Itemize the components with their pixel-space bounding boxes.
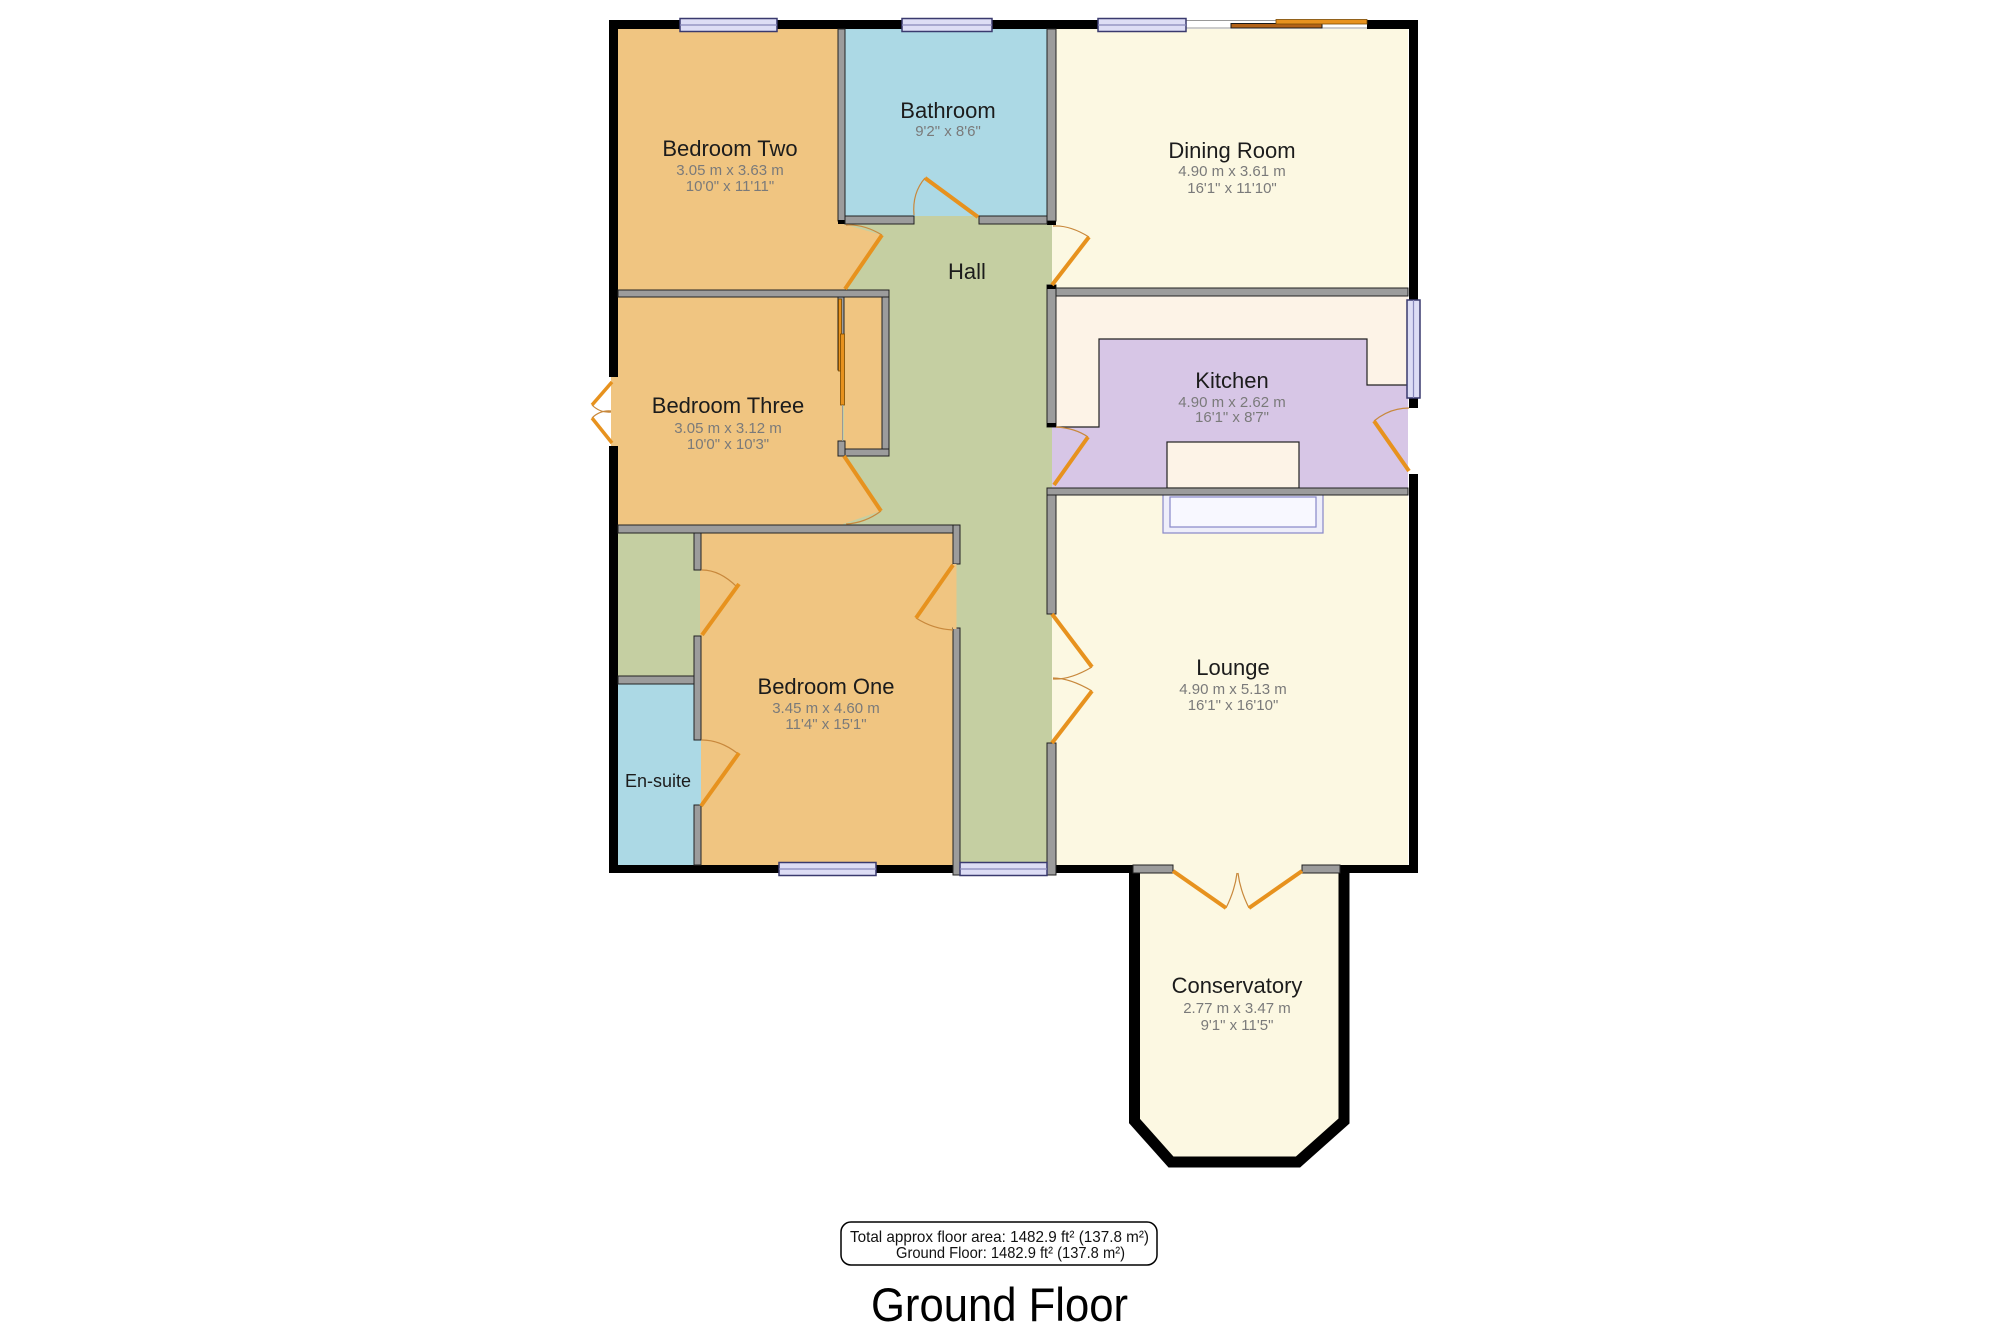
- svg-text:Bedroom One: Bedroom One: [758, 674, 895, 699]
- svg-text:Conservatory: Conservatory: [1172, 973, 1303, 998]
- svg-text:3.45 m x 4.60 m: 3.45 m x 4.60 m: [772, 700, 880, 717]
- svg-text:2.77 m x 3.47 m: 2.77 m x 3.47 m: [1183, 1000, 1291, 1017]
- svg-text:En-suite: En-suite: [625, 771, 691, 791]
- svg-text:Bedroom Two: Bedroom Two: [662, 136, 797, 161]
- svg-text:Ground Floor: 1482.9 ft² (137.: Ground Floor: 1482.9 ft² (137.8 m²): [896, 1245, 1125, 1262]
- svg-text:10'0" x 11'11": 10'0" x 11'11": [686, 178, 774, 195]
- svg-text:Ground Floor: Ground Floor: [871, 1278, 1128, 1331]
- svg-text:4.90 m x 3.61 m: 4.90 m x 3.61 m: [1178, 163, 1286, 180]
- svg-text:Lounge: Lounge: [1196, 655, 1269, 680]
- svg-text:10'0" x 10'3": 10'0" x 10'3": [687, 436, 769, 453]
- svg-text:Kitchen: Kitchen: [1195, 368, 1268, 393]
- svg-text:Hall: Hall: [948, 259, 986, 284]
- svg-text:16'1" x 8'7": 16'1" x 8'7": [1195, 409, 1269, 426]
- svg-text:3.05 m x 3.12 m: 3.05 m x 3.12 m: [674, 420, 782, 437]
- svg-text:Total approx floor area: 1482.: Total approx floor area: 1482.9 ft² (137…: [850, 1229, 1149, 1246]
- svg-text:9'2" x 8'6": 9'2" x 8'6": [915, 123, 981, 140]
- svg-text:Bedroom Three: Bedroom Three: [652, 393, 804, 418]
- svg-text:16'1" x 16'10": 16'1" x 16'10": [1188, 697, 1279, 714]
- svg-text:Dining Room: Dining Room: [1168, 138, 1295, 163]
- svg-text:11'4" x 15'1": 11'4" x 15'1": [785, 716, 866, 733]
- svg-text:3.05 m x 3.63 m: 3.05 m x 3.63 m: [676, 162, 784, 179]
- svg-text:9'1" x 11'5": 9'1" x 11'5": [1201, 1017, 1274, 1034]
- svg-text:4.90 m x 5.13 m: 4.90 m x 5.13 m: [1179, 681, 1287, 698]
- svg-text:Bathroom: Bathroom: [900, 98, 995, 123]
- svg-text:16'1" x 11'10": 16'1" x 11'10": [1187, 180, 1277, 197]
